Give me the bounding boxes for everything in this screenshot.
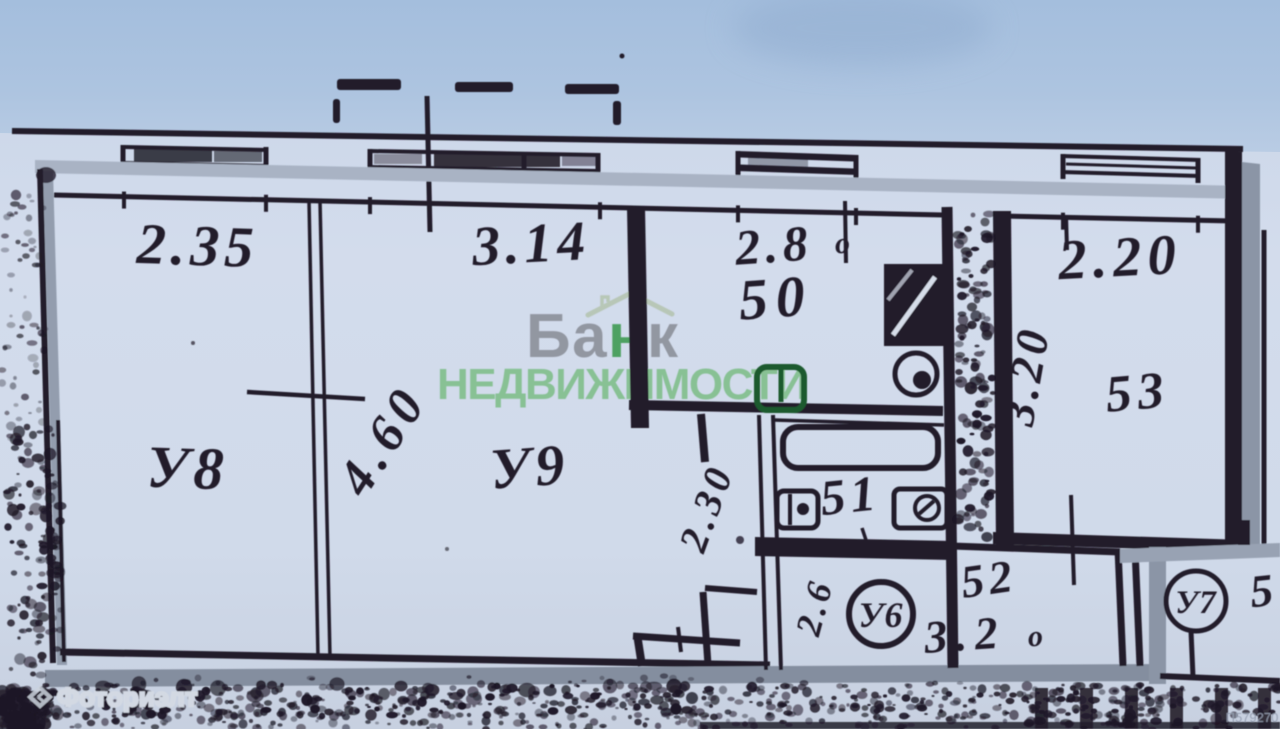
svg-text:НЕДВИЖИМОСТИ: НЕДВИЖИМОСТИ [437, 360, 806, 409]
svg-text:53: 53 [1103, 361, 1172, 423]
svg-text:2.20: 2.20 [1056, 223, 1184, 292]
svg-text:2.35: 2.35 [135, 211, 260, 280]
svg-text:3.2: 3.2 [921, 606, 1007, 663]
svg-text:У7: У7 [1175, 585, 1217, 621]
svg-text:52: 52 [958, 550, 1021, 608]
svg-text:У9: У9 [488, 431, 572, 501]
svg-text:П579270: П579270 [1226, 710, 1279, 725]
svg-text:У8: У8 [146, 434, 230, 503]
svg-text:о: о [834, 227, 851, 261]
svg-text:о: о [1027, 620, 1044, 654]
svg-text:У6: У6 [858, 595, 903, 635]
svg-text:Фоториэлт: Фоториэлт [57, 682, 198, 712]
svg-text:51: 51 [817, 464, 883, 526]
svg-text:3.14: 3.14 [470, 210, 592, 278]
svg-text:50: 50 [736, 263, 814, 333]
